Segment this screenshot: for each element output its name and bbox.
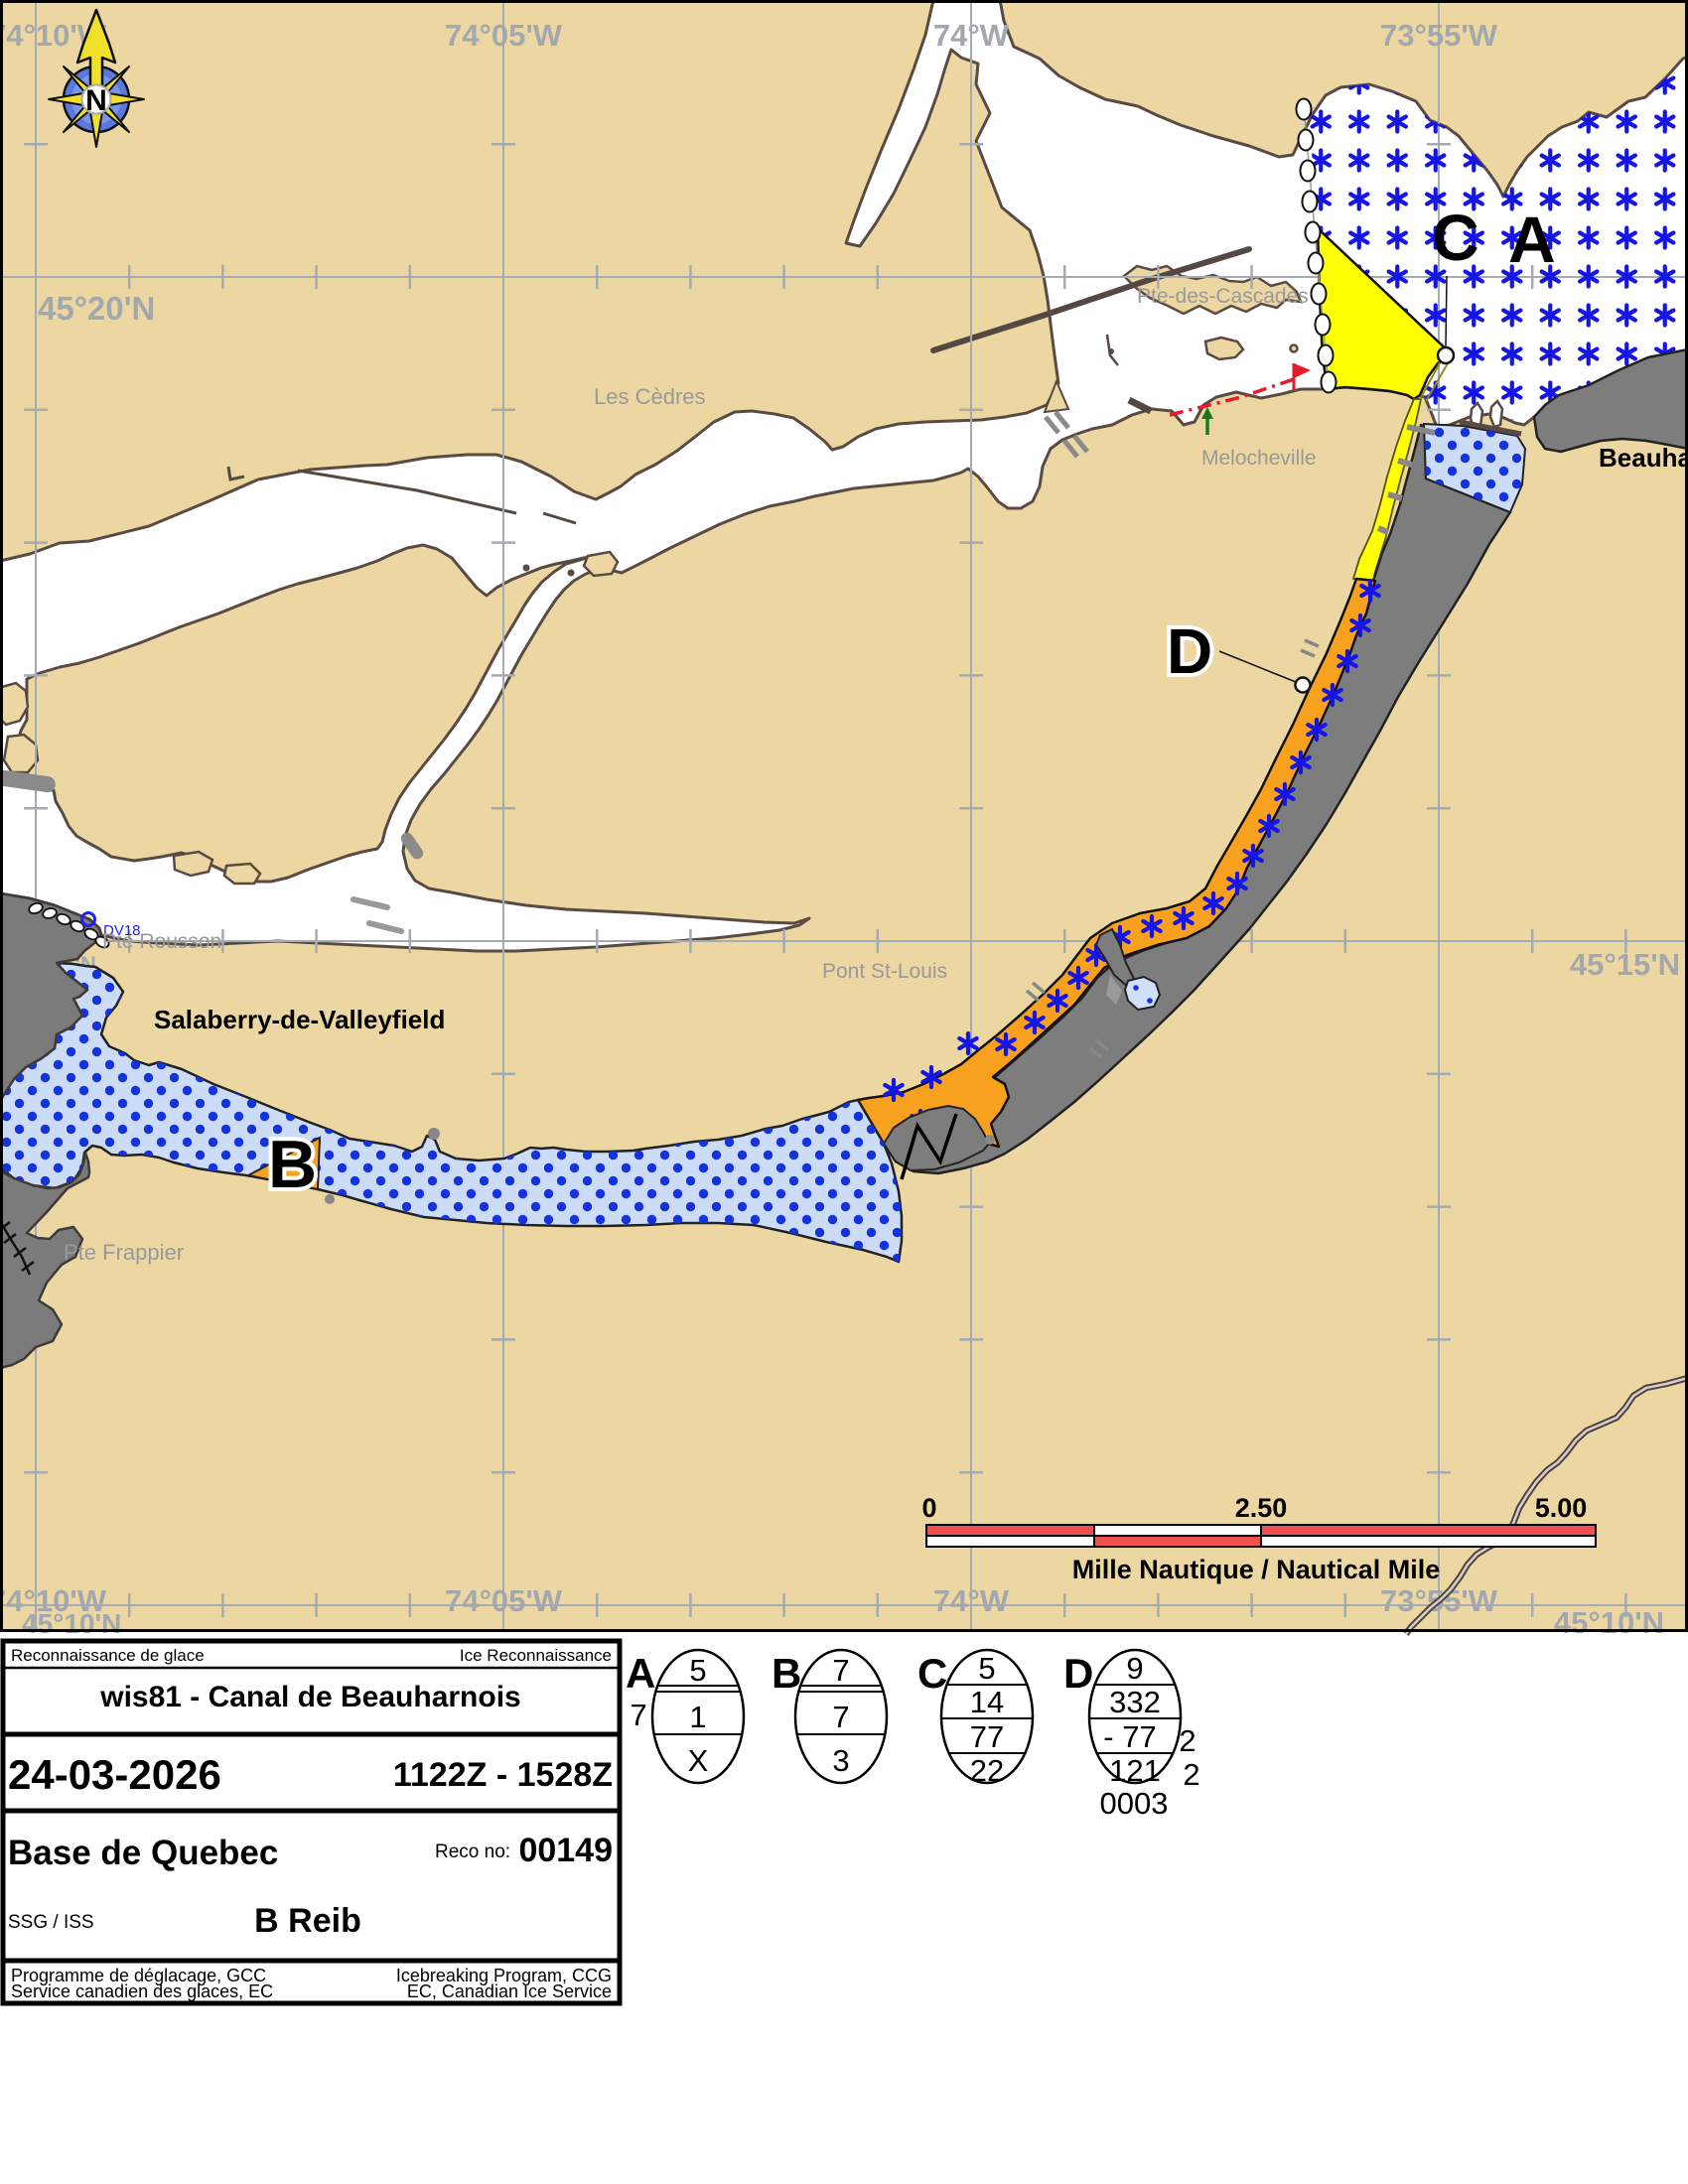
- svg-text:Pte Rousson: Pte Rousson: [102, 930, 221, 953]
- svg-text:3: 3: [832, 1743, 849, 1778]
- svg-text:B: B: [268, 1127, 317, 1202]
- svg-text:9: 9: [1126, 1651, 1143, 1686]
- svg-text:7: 7: [630, 1698, 646, 1732]
- svg-text:Reco no:: Reco no:: [435, 1842, 510, 1862]
- svg-text:0003: 0003: [1100, 1786, 1169, 1821]
- svg-text:wis81 - Canal de Beauharnois: wis81 - Canal de Beauharnois: [99, 1681, 520, 1713]
- svg-text:EC, Canadian Ice Service: EC, Canadian Ice Service: [407, 1981, 612, 2001]
- svg-text:Ice Reconnaissance: Ice Reconnaissance: [460, 1646, 612, 1665]
- svg-text:7: 7: [832, 1653, 849, 1688]
- svg-text:1122Z - 1528Z: 1122Z - 1528Z: [393, 1756, 613, 1794]
- svg-text:A: A: [626, 1650, 655, 1697]
- svg-text:74°05'W: 74°05'W: [445, 18, 563, 53]
- svg-text:45°10'N: 45°10'N: [1554, 1605, 1664, 1640]
- svg-text:5: 5: [978, 1651, 995, 1686]
- svg-text:N: N: [85, 84, 107, 117]
- svg-text:Pte Frappier: Pte Frappier: [64, 1240, 184, 1265]
- svg-text:SSG / ISS: SSG / ISS: [8, 1912, 94, 1933]
- svg-text:Salaberry-de-Valleyfield: Salaberry-de-Valleyfield: [154, 1005, 445, 1034]
- svg-text:C: C: [917, 1650, 947, 1697]
- svg-text:121: 121: [1109, 1753, 1161, 1788]
- svg-text:00149: 00149: [518, 1832, 613, 1869]
- svg-text:74°W: 74°W: [933, 18, 1010, 53]
- svg-text:Mille Nautique / Nautical Mile: Mille Nautique / Nautical Mile: [1072, 1555, 1441, 1584]
- svg-text:45°15'N: 45°15'N: [1570, 947, 1680, 982]
- svg-text:Base de Quebec: Base de Quebec: [8, 1834, 278, 1872]
- svg-text:D: D: [1167, 615, 1212, 687]
- svg-text:- 77: - 77: [1103, 1719, 1156, 1754]
- svg-text:Melocheville: Melocheville: [1201, 447, 1317, 470]
- svg-text:Reconnaissance de glace: Reconnaissance de glace: [11, 1646, 205, 1665]
- svg-text:Beauharnois: Beauharnois: [1599, 443, 1688, 473]
- svg-text:0: 0: [921, 1493, 936, 1523]
- svg-text:24-03-2026: 24-03-2026: [8, 1751, 221, 1798]
- svg-text:5.00: 5.00: [1535, 1493, 1588, 1523]
- svg-text:2: 2: [1179, 1723, 1196, 1758]
- svg-text:2.50: 2.50: [1235, 1493, 1288, 1523]
- svg-text:14: 14: [970, 1685, 1004, 1719]
- svg-text:7: 7: [832, 1700, 849, 1734]
- svg-text:Pont St-Louis: Pont St-Louis: [822, 960, 947, 983]
- svg-text:332: 332: [1109, 1685, 1161, 1719]
- svg-text:45°10'N: 45°10'N: [22, 1608, 121, 1639]
- svg-text:1: 1: [689, 1700, 706, 1734]
- svg-text:45°20'N: 45°20'N: [38, 290, 155, 327]
- svg-text:74°05'W: 74°05'W: [445, 1583, 563, 1618]
- svg-text:A: A: [1508, 203, 1556, 276]
- svg-text:74°W: 74°W: [933, 1583, 1010, 1618]
- svg-text:C: C: [1432, 201, 1479, 274]
- svg-text:Service canadien des glaces, E: Service canadien des glaces, EC: [11, 1981, 273, 2001]
- svg-text:5: 5: [689, 1653, 706, 1688]
- svg-text:73°55'W: 73°55'W: [1380, 18, 1498, 53]
- svg-text:B Reib: B Reib: [254, 1902, 361, 1940]
- svg-text:X: X: [688, 1743, 709, 1778]
- svg-text:B: B: [772, 1650, 801, 1697]
- svg-text:Les Cèdres: Les Cèdres: [594, 384, 706, 409]
- svg-text:77: 77: [970, 1719, 1004, 1754]
- svg-text:2: 2: [1183, 1757, 1199, 1792]
- svg-text:Pte-des-Cascades: Pte-des-Cascades: [1137, 285, 1309, 308]
- svg-text:D: D: [1063, 1650, 1093, 1697]
- svg-text:22: 22: [970, 1753, 1004, 1788]
